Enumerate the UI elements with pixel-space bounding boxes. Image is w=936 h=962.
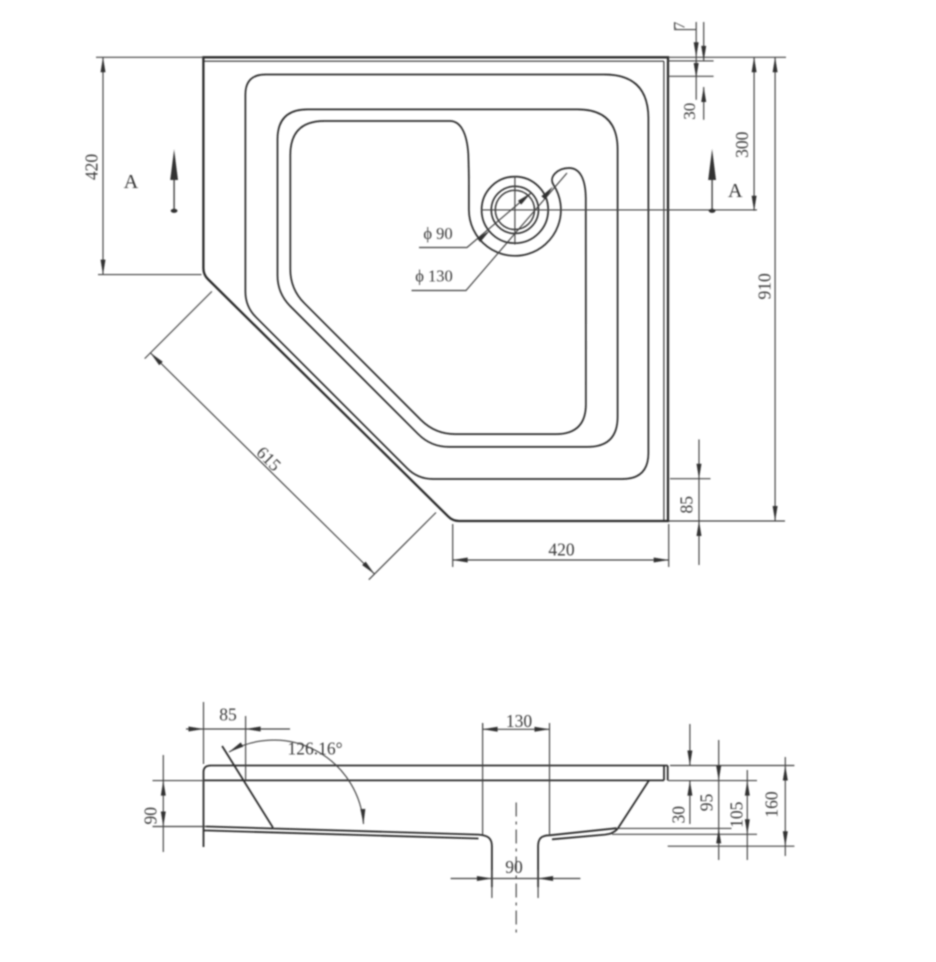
svg-text:A: A bbox=[124, 171, 139, 193]
svg-text:85: 85 bbox=[677, 496, 697, 514]
svg-text:30: 30 bbox=[669, 806, 689, 824]
svg-text:105: 105 bbox=[727, 801, 747, 828]
svg-text:300: 300 bbox=[732, 131, 752, 158]
svg-text:95: 95 bbox=[696, 794, 716, 812]
svg-text:160: 160 bbox=[761, 791, 781, 818]
svg-text:90: 90 bbox=[141, 807, 161, 825]
svg-text:126.16°: 126.16° bbox=[287, 739, 342, 759]
svg-text:7: 7 bbox=[672, 22, 689, 30]
svg-text:130: 130 bbox=[506, 711, 533, 731]
svg-text:420: 420 bbox=[82, 154, 102, 181]
svg-text:A: A bbox=[728, 180, 743, 202]
svg-text:420: 420 bbox=[548, 539, 575, 559]
svg-text:ϕ 90: ϕ 90 bbox=[423, 224, 452, 243]
svg-text:85: 85 bbox=[219, 705, 237, 725]
svg-text:90: 90 bbox=[505, 857, 523, 877]
svg-text:30: 30 bbox=[680, 103, 699, 120]
svg-text:ϕ 130: ϕ 130 bbox=[415, 267, 453, 286]
svg-text:910: 910 bbox=[754, 273, 774, 300]
